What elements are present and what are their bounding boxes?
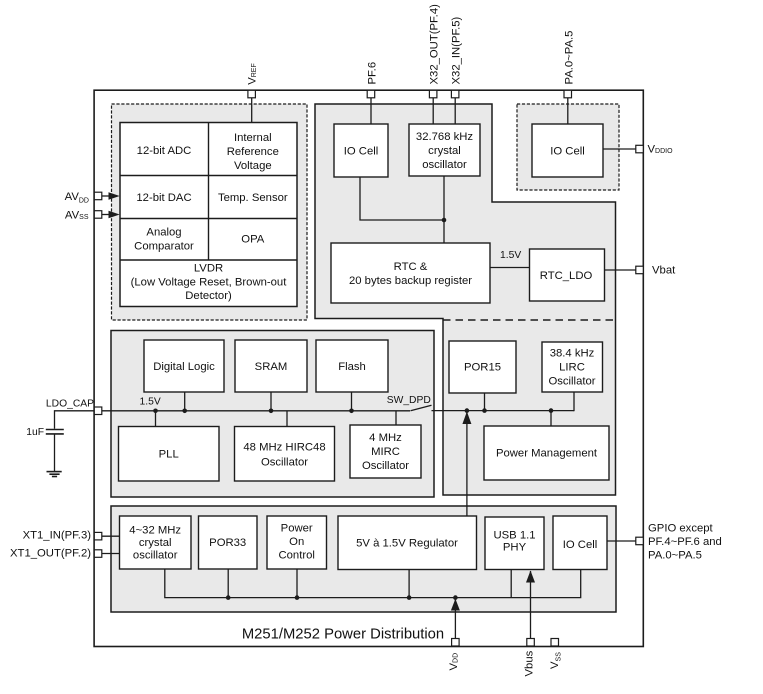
- svg-text:PA.0~PA.5: PA.0~PA.5: [563, 31, 575, 85]
- svg-text:Detector): Detector): [185, 290, 232, 302]
- svg-text:XT1_OUT(PF.2): XT1_OUT(PF.2): [10, 547, 91, 559]
- svg-text:LDO_CAP: LDO_CAP: [46, 399, 94, 410]
- svg-text:Comparator: Comparator: [134, 241, 194, 253]
- svg-text:Power Management: Power Management: [496, 448, 598, 460]
- svg-text:Digital Logic: Digital Logic: [153, 361, 215, 373]
- svg-text:IO Cell: IO Cell: [563, 539, 598, 551]
- svg-text:crystal: crystal: [428, 145, 461, 157]
- svg-text:PA.0~PA.5: PA.0~PA.5: [648, 550, 702, 562]
- svg-text:SW_DPD: SW_DPD: [387, 395, 431, 406]
- svg-text:5V à 1.5V Regulator: 5V à 1.5V Regulator: [356, 538, 458, 550]
- svg-text:X32_OUT(PF.4): X32_OUT(PF.4): [429, 4, 441, 85]
- svg-text:POR15: POR15: [464, 362, 501, 374]
- svg-text:12-bit DAC: 12-bit DAC: [136, 192, 191, 204]
- svg-text:Flash: Flash: [338, 361, 366, 373]
- svg-text:1.5V: 1.5V: [140, 397, 161, 408]
- svg-text:Oscillator: Oscillator: [362, 460, 409, 472]
- svg-text:PLL: PLL: [159, 449, 179, 461]
- svg-text:PHY: PHY: [503, 541, 527, 553]
- svg-text:Power: Power: [281, 522, 313, 534]
- svg-text:X32_IN(PF.5): X32_IN(PF.5): [451, 16, 463, 84]
- svg-text:Vbat: Vbat: [652, 264, 676, 276]
- svg-text:XT1_IN(PF.3): XT1_IN(PF.3): [23, 530, 92, 542]
- svg-text:PF.4~PF.6 and: PF.4~PF.6 and: [648, 536, 722, 548]
- svg-text:Analog: Analog: [146, 227, 181, 239]
- svg-text:RTC_LDO: RTC_LDO: [540, 270, 593, 282]
- svg-text:12-bit ADC: 12-bit ADC: [137, 145, 192, 157]
- svg-text:OPA: OPA: [241, 234, 264, 246]
- svg-text:Internal: Internal: [234, 132, 272, 144]
- svg-text:M251/M252 Power Distribution: M251/M252 Power Distribution: [242, 627, 444, 643]
- svg-text:20 bytes backup register: 20 bytes backup register: [349, 275, 472, 287]
- svg-text:Control: Control: [278, 550, 314, 562]
- svg-text:RTC &: RTC &: [394, 261, 428, 273]
- svg-text:48 MHz HIRC48: 48 MHz HIRC48: [243, 442, 325, 454]
- svg-text:Vbus: Vbus: [524, 650, 536, 676]
- svg-text:LIRC: LIRC: [559, 362, 585, 374]
- svg-text:MIRC: MIRC: [371, 446, 400, 458]
- svg-text:POR33: POR33: [209, 537, 246, 549]
- svg-text:USB 1.1: USB 1.1: [493, 529, 535, 541]
- svg-text:Temp. Sensor: Temp. Sensor: [218, 192, 288, 204]
- svg-text:oscillator: oscillator: [422, 159, 467, 171]
- svg-text:oscillator: oscillator: [133, 550, 178, 562]
- svg-text:Voltage: Voltage: [234, 160, 272, 172]
- svg-text:1uF: 1uF: [26, 427, 44, 438]
- svg-text:4 MHz: 4 MHz: [369, 432, 402, 444]
- svg-text:PF.6: PF.6: [367, 62, 379, 85]
- svg-text:32.768 kHz: 32.768 kHz: [416, 131, 473, 143]
- svg-text:(Low Voltage Reset, Brown-out: (Low Voltage Reset, Brown-out: [131, 276, 288, 288]
- svg-text:Oscillator: Oscillator: [261, 457, 308, 469]
- svg-text:Oscillator: Oscillator: [548, 376, 595, 388]
- svg-text:On: On: [289, 536, 304, 548]
- svg-text:4~32 MHz: 4~32 MHz: [129, 525, 181, 537]
- svg-text:LVDR: LVDR: [194, 263, 223, 275]
- svg-text:SRAM: SRAM: [255, 361, 288, 373]
- svg-text:38.4 kHz: 38.4 kHz: [550, 348, 595, 360]
- svg-text:1.5V: 1.5V: [500, 250, 521, 261]
- svg-text:Reference: Reference: [227, 146, 279, 158]
- svg-text:crystal: crystal: [139, 537, 172, 549]
- svg-text:IO Cell: IO Cell: [344, 146, 379, 158]
- svg-text:IO Cell: IO Cell: [550, 146, 585, 158]
- svg-text:GPIO except: GPIO except: [648, 523, 714, 535]
